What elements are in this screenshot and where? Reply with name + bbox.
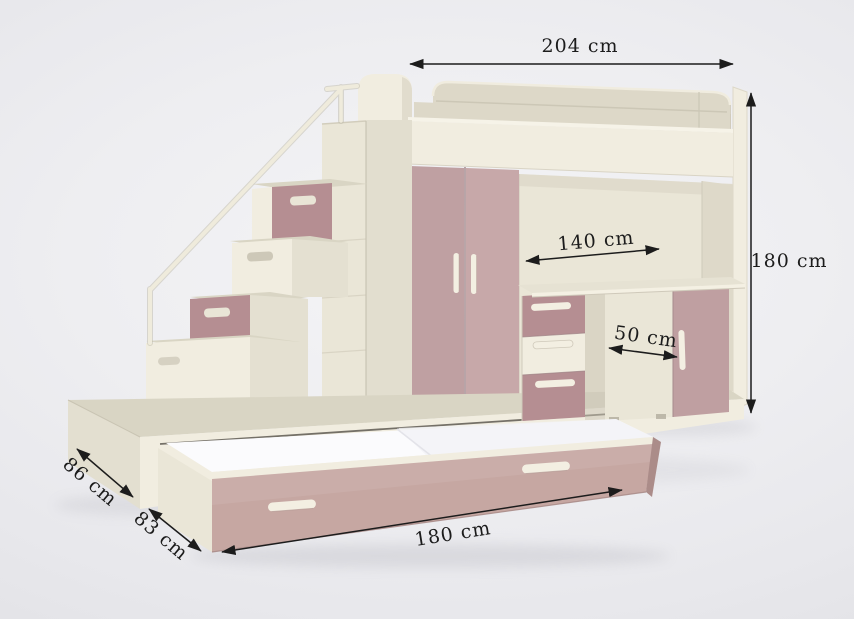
wardrobe-handle-left (454, 253, 460, 293)
wardrobe-handle-right (471, 254, 477, 294)
stair-step-3 (230, 236, 348, 301)
desk-drawer-column (522, 292, 585, 421)
wardrobe (410, 166, 519, 418)
storage-stairs (146, 86, 412, 431)
desk (518, 277, 745, 422)
right-side-panel (733, 87, 747, 410)
dim-overall-width-label: 204 cm (542, 35, 619, 57)
desk-drawer-2 (522, 333, 585, 375)
desk-pedestal (605, 285, 729, 422)
stair-drawer-3 (232, 239, 292, 301)
desk-drawer-1 (522, 292, 585, 337)
product-render: 204 cm 180 cm 140 cm 50 cm 86 cm 83 cm 1… (0, 0, 854, 619)
desk-drawer-3 (522, 371, 585, 421)
dim-overall-height-label: 180 cm (751, 250, 828, 272)
